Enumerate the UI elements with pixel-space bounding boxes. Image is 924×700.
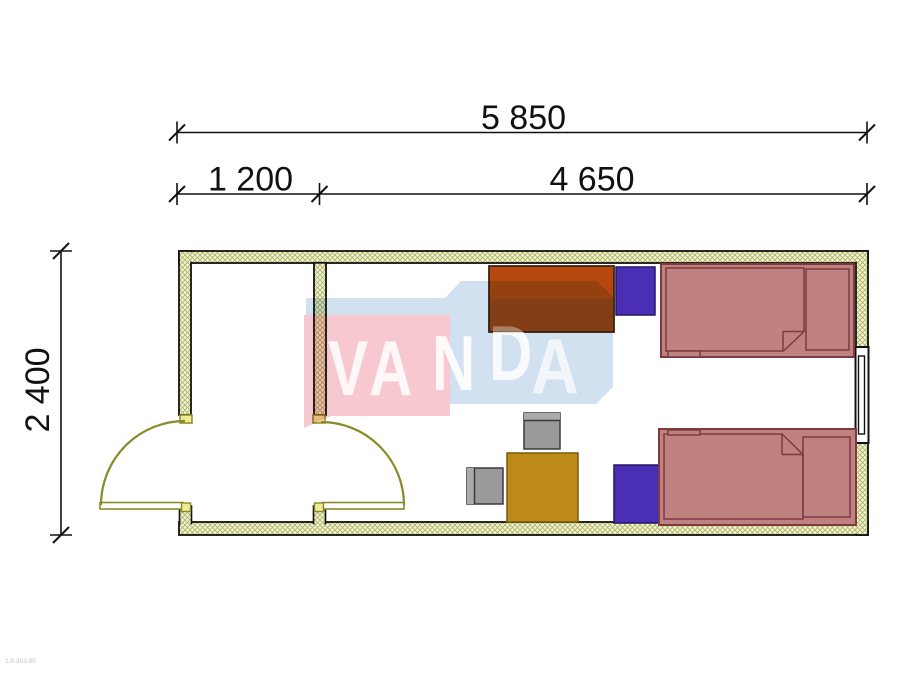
svg-text:1 200: 1 200 [208,161,293,199]
svg-text:5 850: 5 850 [481,99,566,137]
svg-text:A: A [531,323,579,410]
svg-text:A: A [369,324,412,411]
svg-text:N: N [432,319,475,406]
svg-text:2 400: 2 400 [19,347,57,432]
svg-text:1.9.303.85: 1.9.303.85 [5,658,36,665]
svg-text:4 650: 4 650 [549,161,634,199]
svg-text:V: V [328,324,368,411]
